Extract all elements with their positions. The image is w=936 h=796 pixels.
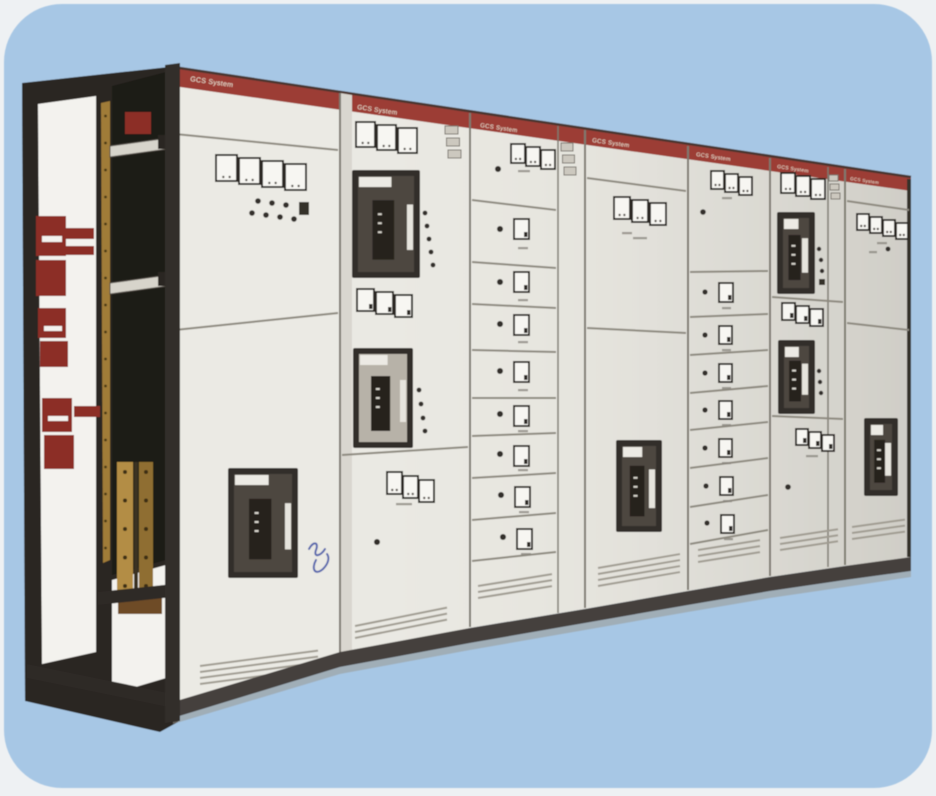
panel-meter (781, 173, 795, 193)
drawer-handle (719, 401, 732, 419)
breaker-switch (782, 303, 795, 320)
drawer-handle (720, 477, 733, 495)
corner-post (165, 63, 180, 723)
nameplate (722, 197, 732, 199)
indicator-lamp (425, 224, 430, 229)
panel-meter (811, 179, 825, 199)
drawer-lamp (702, 332, 707, 337)
drawer-label (722, 307, 731, 309)
panel-meter (216, 155, 237, 181)
drawer-lamp (703, 483, 708, 488)
drawer-label (722, 387, 731, 389)
drawer-handle (514, 219, 529, 239)
drawer-handle (719, 326, 732, 344)
drawer-lamp (702, 445, 707, 450)
drawer-label (518, 299, 528, 301)
nameplate (869, 251, 877, 253)
drawer-handle (517, 529, 532, 549)
panel-meter (403, 476, 418, 498)
indicator-lamp (495, 166, 501, 172)
drawer-label (518, 469, 528, 471)
breaker-switch (810, 309, 823, 326)
panel-meter (711, 171, 724, 189)
busbar-insulator (40, 341, 68, 367)
drawer-handle (514, 315, 529, 335)
indicator-lamp (249, 210, 255, 216)
panel-meter (419, 480, 434, 502)
drawer-label (518, 430, 528, 432)
indicator-lamp (817, 247, 821, 251)
busbar-insulator (42, 398, 72, 432)
drawer-lamp (497, 226, 503, 232)
indicator-lamp (700, 209, 706, 215)
panel-meter (285, 164, 306, 190)
insulator-gap (48, 416, 68, 421)
breaker-window (616, 440, 662, 532)
breaker-switch (796, 429, 808, 445)
indicator-lamp (886, 247, 891, 252)
drawer-lamp (704, 520, 709, 525)
scan-page: GCS SystemGCS SystemGCS SystemGCS System… (0, 0, 936, 796)
drawer-lamp (497, 451, 503, 457)
drawer-label (518, 247, 528, 249)
scene-shapes: GCS SystemGCS SystemGCS SystemGCS System… (4, 4, 932, 788)
panel-meter (526, 147, 540, 166)
drawer-handle (514, 446, 529, 466)
drawer-handle (719, 364, 732, 382)
drawer-label (722, 349, 731, 351)
indicator-lamp (819, 391, 823, 395)
panel-meter (739, 177, 752, 195)
indicator-lamp (429, 250, 434, 255)
panel-meter (239, 158, 260, 184)
end-frame-opening-left (38, 96, 96, 664)
panel-meter (725, 174, 738, 192)
drawer-handle (721, 515, 734, 533)
indicator-lamp (255, 198, 261, 204)
nameplate (518, 170, 530, 172)
panel-stile (340, 93, 352, 660)
insulator-gap (44, 326, 62, 331)
panel-meter (377, 125, 396, 150)
drawer-label (722, 462, 731, 464)
breaker-switch (357, 289, 374, 311)
indicator-lamp (277, 214, 283, 220)
nameplate (806, 455, 818, 457)
panel-meter (541, 150, 555, 169)
indicator-lamp (423, 211, 428, 216)
drawer-lamp (500, 534, 506, 540)
drawer-lamp (702, 407, 707, 412)
indicator-lamp (419, 402, 424, 407)
drawer-lamp (702, 370, 707, 375)
indicator-lamp (817, 369, 821, 373)
drawer-lamp (497, 321, 503, 327)
nameplate (877, 242, 887, 244)
panel-meter (387, 472, 402, 494)
indicator-lamp (269, 200, 275, 206)
drawer-handle (719, 439, 732, 457)
drawer-label (722, 424, 731, 426)
drawer-label (723, 500, 732, 502)
panel-meter (883, 220, 895, 236)
drawer-handle (514, 362, 529, 382)
drawer-lamp (497, 368, 503, 374)
panel-meter (896, 223, 908, 239)
breaker-window (864, 418, 898, 496)
busbar-insulator (125, 112, 151, 134)
breaker-switch (395, 295, 412, 317)
panel-meter (870, 217, 882, 233)
panel-meter (398, 128, 417, 153)
breaker-switch (809, 432, 821, 448)
indicator-lamp (417, 388, 422, 393)
indicator-lamp (263, 212, 269, 218)
busbar-insulator (38, 308, 66, 338)
indicator-lamp (374, 539, 380, 545)
indicator-lamp (785, 484, 791, 490)
drawer-seam (690, 271, 768, 272)
indicator-lamp (291, 216, 297, 222)
indicator-lamp (431, 263, 436, 268)
busbar-insulator (36, 260, 66, 296)
busbar-gap (134, 462, 138, 600)
indicator-square (819, 279, 825, 285)
indicator-lamp (818, 380, 822, 384)
drawer-lamp (498, 492, 504, 498)
key-switch (299, 202, 309, 215)
breaker-window (777, 212, 815, 294)
panel-meter (857, 214, 869, 230)
nameplate (396, 503, 412, 505)
nameplate (633, 237, 647, 239)
busbar-insulator (44, 435, 74, 469)
panel-meter (632, 200, 648, 222)
panel-meter (511, 144, 525, 163)
indicator-lamp (421, 416, 426, 421)
busbar-segment (66, 246, 94, 255)
breaker-switch (376, 292, 393, 314)
busbar-segment (66, 228, 94, 239)
nameplate (622, 232, 632, 234)
panel-meter (262, 161, 283, 187)
drawer-label (518, 341, 528, 343)
breaker-window (352, 170, 420, 278)
breaker-switch (796, 306, 809, 323)
breaker-window (353, 348, 413, 448)
busbar-segment (74, 406, 100, 417)
panel-meter (614, 197, 630, 219)
drawer-handle (514, 406, 529, 426)
indicator-lamp (819, 258, 823, 262)
panel-meter (650, 203, 666, 225)
indicator-lamp (820, 269, 824, 273)
switchgear-lineup-photo: GCS SystemGCS SystemGCS SystemGCS System… (0, 0, 936, 796)
drawer-lamp (497, 411, 503, 417)
panel-meter (356, 122, 375, 147)
breaker-switch (822, 435, 834, 451)
drawer-label (724, 538, 733, 540)
insulator-gap (42, 236, 62, 242)
drawer-handle (515, 487, 530, 507)
panel-meter (796, 176, 810, 196)
drawer-lamp (702, 289, 707, 294)
drawer-lamp (497, 279, 503, 285)
breaker-window (778, 340, 815, 414)
drawer-label (519, 511, 529, 513)
breaker-window (228, 468, 298, 578)
drawer-handle (719, 283, 733, 302)
indicator-lamp (423, 429, 428, 434)
indicator-lamp (283, 202, 289, 208)
drawer-handle (514, 272, 529, 292)
drawer-label (521, 553, 531, 555)
vent-slots (829, 175, 840, 199)
drawer-label (518, 389, 528, 391)
indicator-lamp (427, 237, 432, 242)
